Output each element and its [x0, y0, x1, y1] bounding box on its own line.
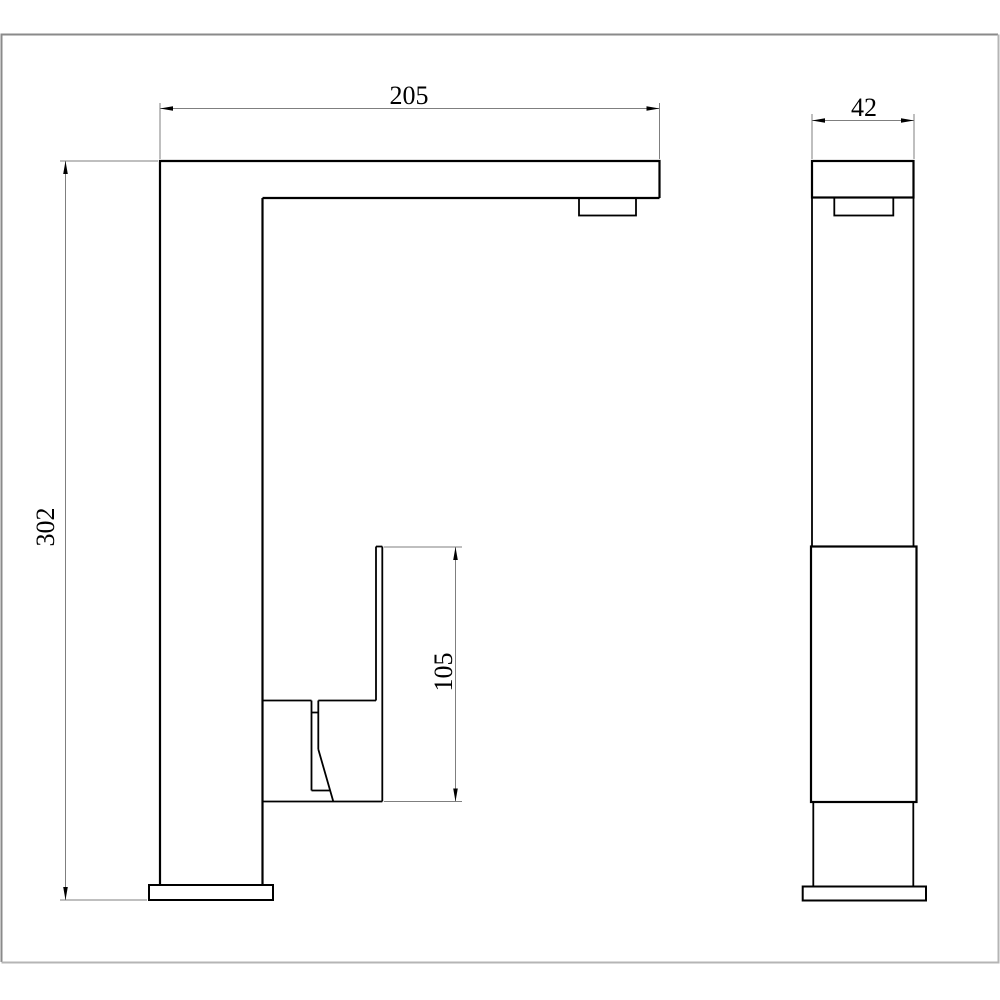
dimension-top-width: 205 [160, 81, 660, 159]
side-handle-section [811, 547, 917, 803]
dimension-handle-height: 105 [384, 547, 462, 802]
side-lower-column [813, 802, 913, 887]
arrowhead-right-icon [901, 118, 914, 123]
dim-42-label: 42 [851, 93, 877, 122]
arrowhead-left-icon [812, 118, 825, 123]
dimension-side-width: 42 [812, 93, 914, 159]
dim-205-extension-lines [160, 103, 660, 159]
arrowhead-left-icon [160, 106, 173, 111]
front-base-plinth [149, 885, 273, 900]
side-base-plinth [803, 887, 926, 901]
side-spout-nozzle [834, 198, 893, 216]
dim-302-label: 302 [31, 508, 60, 547]
frame-bottom-right-border [2, 35, 999, 963]
frame-top-left-border [2, 35, 999, 963]
front-body-outline [160, 161, 660, 885]
side-spout-cap [812, 161, 914, 198]
side-upper-column [812, 198, 914, 546]
side-view [803, 161, 926, 901]
arrowhead-down-icon [63, 887, 68, 900]
dim-105-label: 105 [429, 653, 458, 692]
arrowhead-down-icon [453, 789, 458, 802]
technical-drawing-canvas: 205 42 302 105 [0, 0, 1000, 1000]
front-view [149, 161, 660, 900]
front-spout-nozzle [579, 198, 636, 216]
arrowhead-up-icon [453, 547, 458, 560]
page-frame [2, 35, 999, 963]
arrowhead-right-icon [647, 106, 660, 111]
dim-302-extension-lines [60, 161, 158, 900]
front-handle-lever [263, 547, 383, 802]
dim-205-label: 205 [390, 81, 429, 110]
arrowhead-up-icon [63, 161, 68, 174]
faucet-dimension-drawing: 205 42 302 105 [0, 0, 1000, 1000]
dimension-total-height: 302 [31, 161, 158, 900]
